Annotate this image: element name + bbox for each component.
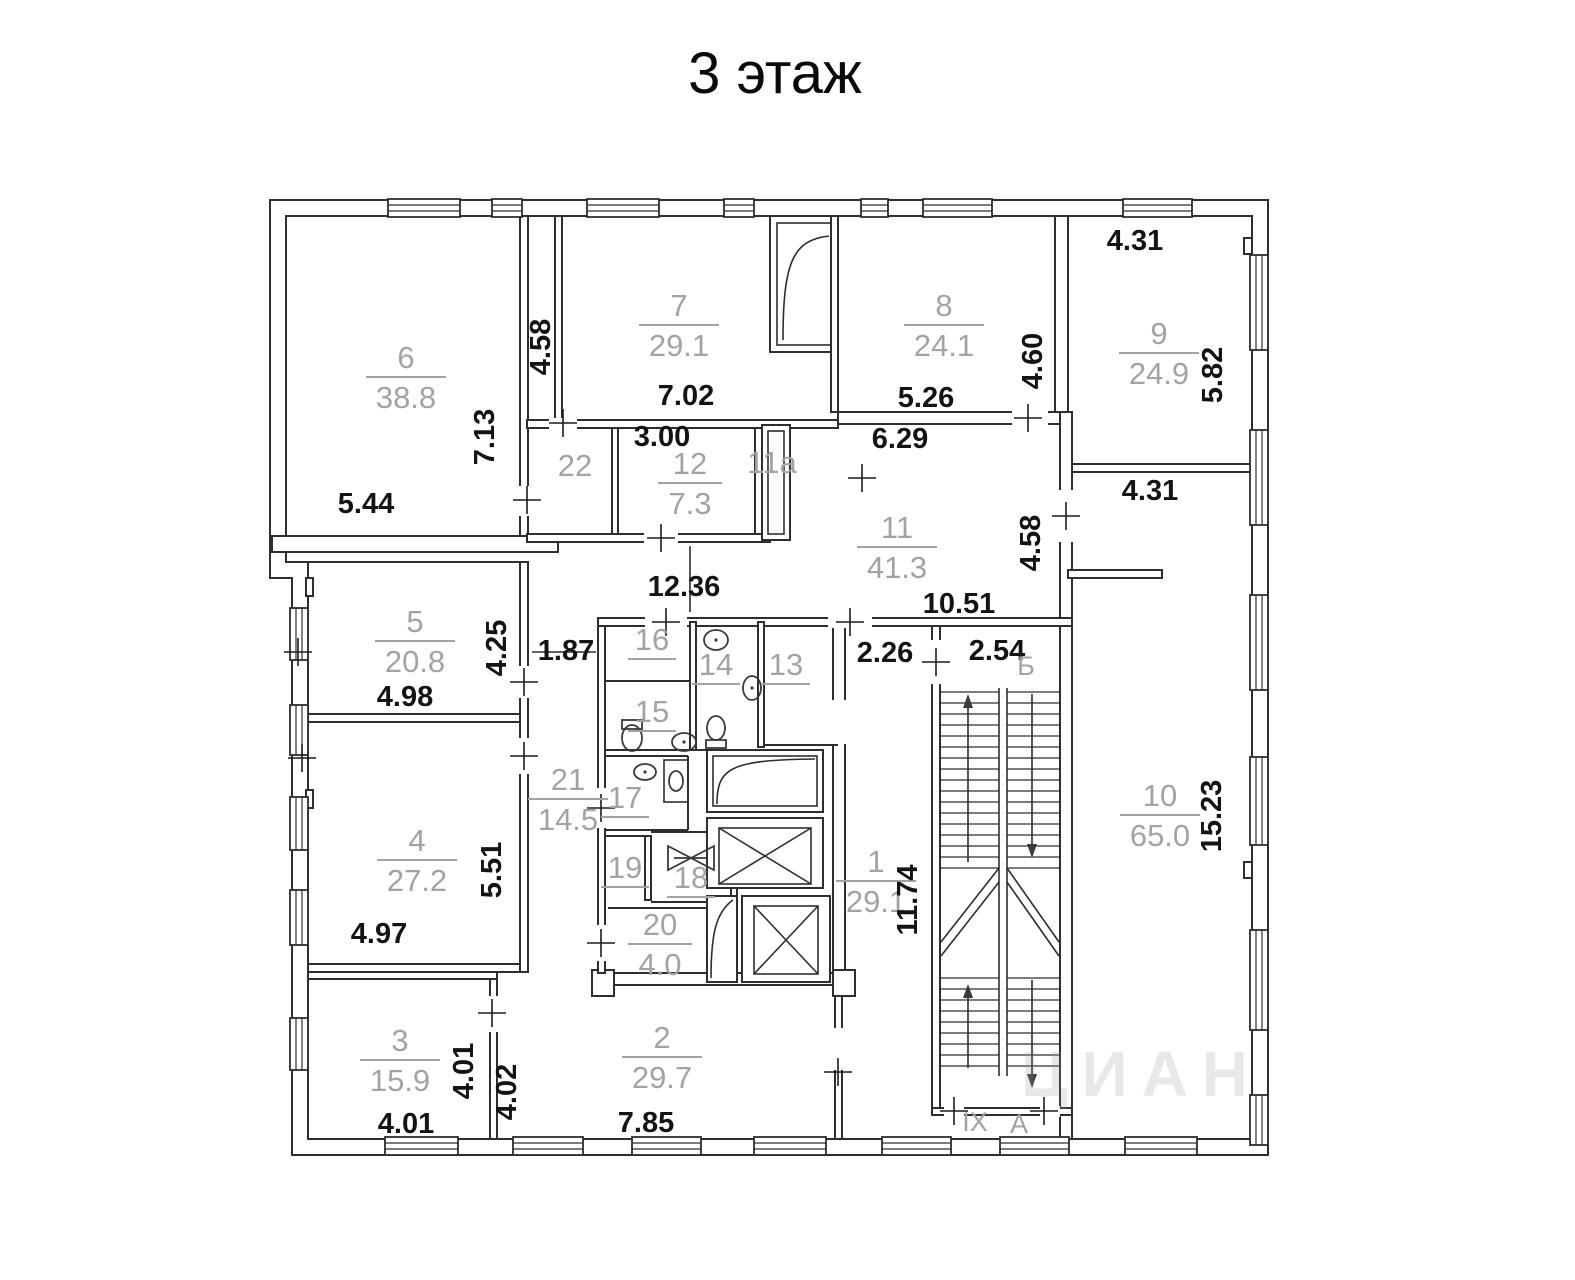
window-icon — [290, 797, 308, 850]
door-tick-icon — [848, 464, 876, 492]
room-label: 22 — [558, 448, 592, 483]
dim-label: 5.51 — [476, 842, 508, 898]
door-tick-icon — [1014, 404, 1042, 432]
window-icon — [632, 1137, 701, 1155]
window-icon — [388, 199, 460, 217]
floor-plan-drawing: ЦИАН 638.8729.1824.1924.9520.8427.2315.9… — [0, 0, 1575, 1280]
door-tick-icon — [549, 409, 577, 437]
room-label: 21 — [551, 762, 585, 797]
watermark-text: ЦИАН — [1021, 1038, 1262, 1110]
dim-label: 15.23 — [1196, 780, 1228, 853]
window-icon — [1000, 1137, 1069, 1155]
stair-label: А — [1010, 1109, 1028, 1139]
room-label: 11 — [881, 510, 913, 545]
door-tick-icon — [1052, 502, 1080, 530]
dimension-labels-group: 5.447.134.587.023.0012.361.874.254.985.5… — [338, 225, 1229, 1140]
dim-label: 4.25 — [481, 620, 513, 676]
dim-label: 4.58 — [525, 319, 557, 375]
dim-label: 4.01 — [378, 1108, 434, 1140]
door-tick-icon — [824, 1058, 852, 1086]
room-area-label: 29.1 — [649, 328, 709, 363]
window-icon — [492, 199, 522, 217]
dim-label: 4.31 — [1107, 225, 1163, 257]
dim-label: 4.97 — [351, 918, 407, 950]
dim-label: 4.31 — [1122, 475, 1178, 507]
room-label: 9 — [1150, 316, 1167, 351]
room-label: 20 — [643, 907, 677, 942]
dim-label: 5.82 — [1197, 347, 1229, 403]
room-label: 3 — [391, 1023, 408, 1058]
dim-label: 11.74 — [892, 865, 924, 936]
room-label: 2 — [653, 1020, 670, 1055]
room-area-label: 27.2 — [387, 863, 447, 898]
window-icon — [1250, 430, 1268, 525]
window-icon — [587, 199, 659, 217]
dim-label: 5.26 — [898, 382, 954, 414]
room-area-label: 24.1 — [914, 328, 974, 363]
window-icon — [1250, 757, 1268, 845]
room-label: 14 — [699, 647, 733, 682]
door-tick-icon — [510, 668, 538, 696]
dim-label: 4.58 — [1015, 515, 1047, 571]
window-icon — [1123, 199, 1192, 217]
room-label: 11а — [747, 445, 797, 480]
room-label: 10 — [1143, 778, 1177, 813]
dim-label: 7.85 — [618, 1107, 674, 1139]
door-tick-icon — [513, 486, 541, 514]
window-icon — [923, 199, 992, 217]
room-label: 4 — [408, 823, 425, 858]
room-label: 19 — [608, 850, 642, 885]
window-icon — [754, 1137, 826, 1155]
watermark: ЦИАН — [1021, 1038, 1262, 1110]
window-icon — [290, 890, 308, 945]
dim-label: 12.36 — [648, 571, 721, 603]
window-icon — [1250, 930, 1268, 1030]
dim-label: 7.13 — [469, 409, 501, 465]
room-area-label: 65.0 — [1130, 818, 1190, 853]
door-tick-icon — [647, 524, 675, 552]
room-area-label: 15.9 — [370, 1063, 430, 1098]
dim-label: 2.26 — [857, 637, 913, 669]
room-area-label: 24.9 — [1129, 356, 1189, 391]
window-icon — [513, 1137, 583, 1155]
dim-label: 4.02 — [491, 1064, 523, 1120]
stair-label: IX — [962, 1107, 988, 1137]
room-label: 17 — [608, 780, 642, 815]
room-label: 8 — [935, 288, 952, 323]
dim-label: 4.60 — [1017, 333, 1049, 389]
dim-label: 4.98 — [377, 681, 433, 713]
window-icon — [1250, 595, 1268, 690]
room-label: 6 — [397, 340, 414, 375]
room-label: 18 — [674, 860, 708, 895]
door-tick-icon — [510, 742, 538, 770]
room-area-label: 4.0 — [638, 947, 681, 982]
room-area-label: 7.3 — [668, 486, 711, 521]
room-area-label: 29.7 — [632, 1060, 692, 1095]
door-tick-icon — [478, 999, 506, 1027]
door-tick-icon — [922, 648, 950, 676]
window-icon — [290, 1018, 308, 1070]
room-area-label: 20.8 — [385, 644, 445, 679]
staircase — [941, 688, 1059, 1088]
room-label: 1 — [867, 844, 884, 879]
elevator-shafts — [707, 750, 830, 982]
window-icon — [290, 705, 308, 755]
window-icon — [724, 199, 754, 217]
stair-label: Б — [1017, 651, 1035, 681]
door-tick-icon — [587, 929, 615, 957]
room-area-label: 41.3 — [867, 550, 927, 585]
dim-label: 10.51 — [923, 588, 996, 620]
dim-label: 1.87 — [538, 635, 594, 667]
dim-label: 7.02 — [658, 380, 714, 412]
window-icon — [882, 1137, 951, 1155]
dim-label: 5.44 — [338, 488, 394, 520]
room-label: 16 — [635, 622, 669, 657]
room-area-label: 38.8 — [376, 380, 436, 415]
stair-treads — [941, 692, 1059, 1066]
room-label: 5 — [406, 604, 423, 639]
room-label: 7 — [670, 288, 687, 323]
room-label: 15 — [635, 694, 669, 729]
dim-label: 3.00 — [634, 421, 690, 453]
room-label: 13 — [769, 647, 803, 682]
window-icon — [1125, 1137, 1197, 1155]
floor-plan-page: 3 этаж — [0, 0, 1575, 1280]
window-icon — [1250, 255, 1268, 350]
dim-label: 6.29 — [872, 423, 928, 455]
room-area-label: 14.5 — [538, 802, 598, 837]
dim-label: 4.01 — [448, 1043, 480, 1099]
window-icon — [861, 199, 888, 217]
